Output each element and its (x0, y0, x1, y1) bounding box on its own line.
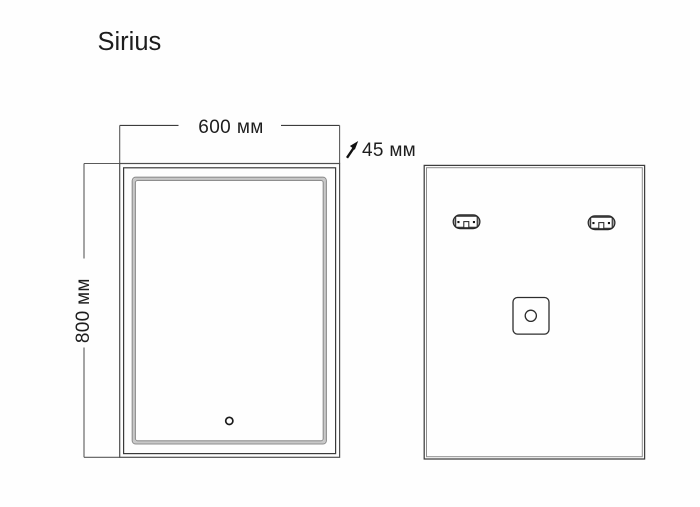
svg-text:Sirius: Sirius (98, 28, 162, 56)
svg-text:600 мм: 600 мм (198, 117, 264, 138)
svg-text:800 мм: 800 мм (73, 278, 94, 343)
svg-text:45 мм: 45 мм (362, 140, 416, 161)
